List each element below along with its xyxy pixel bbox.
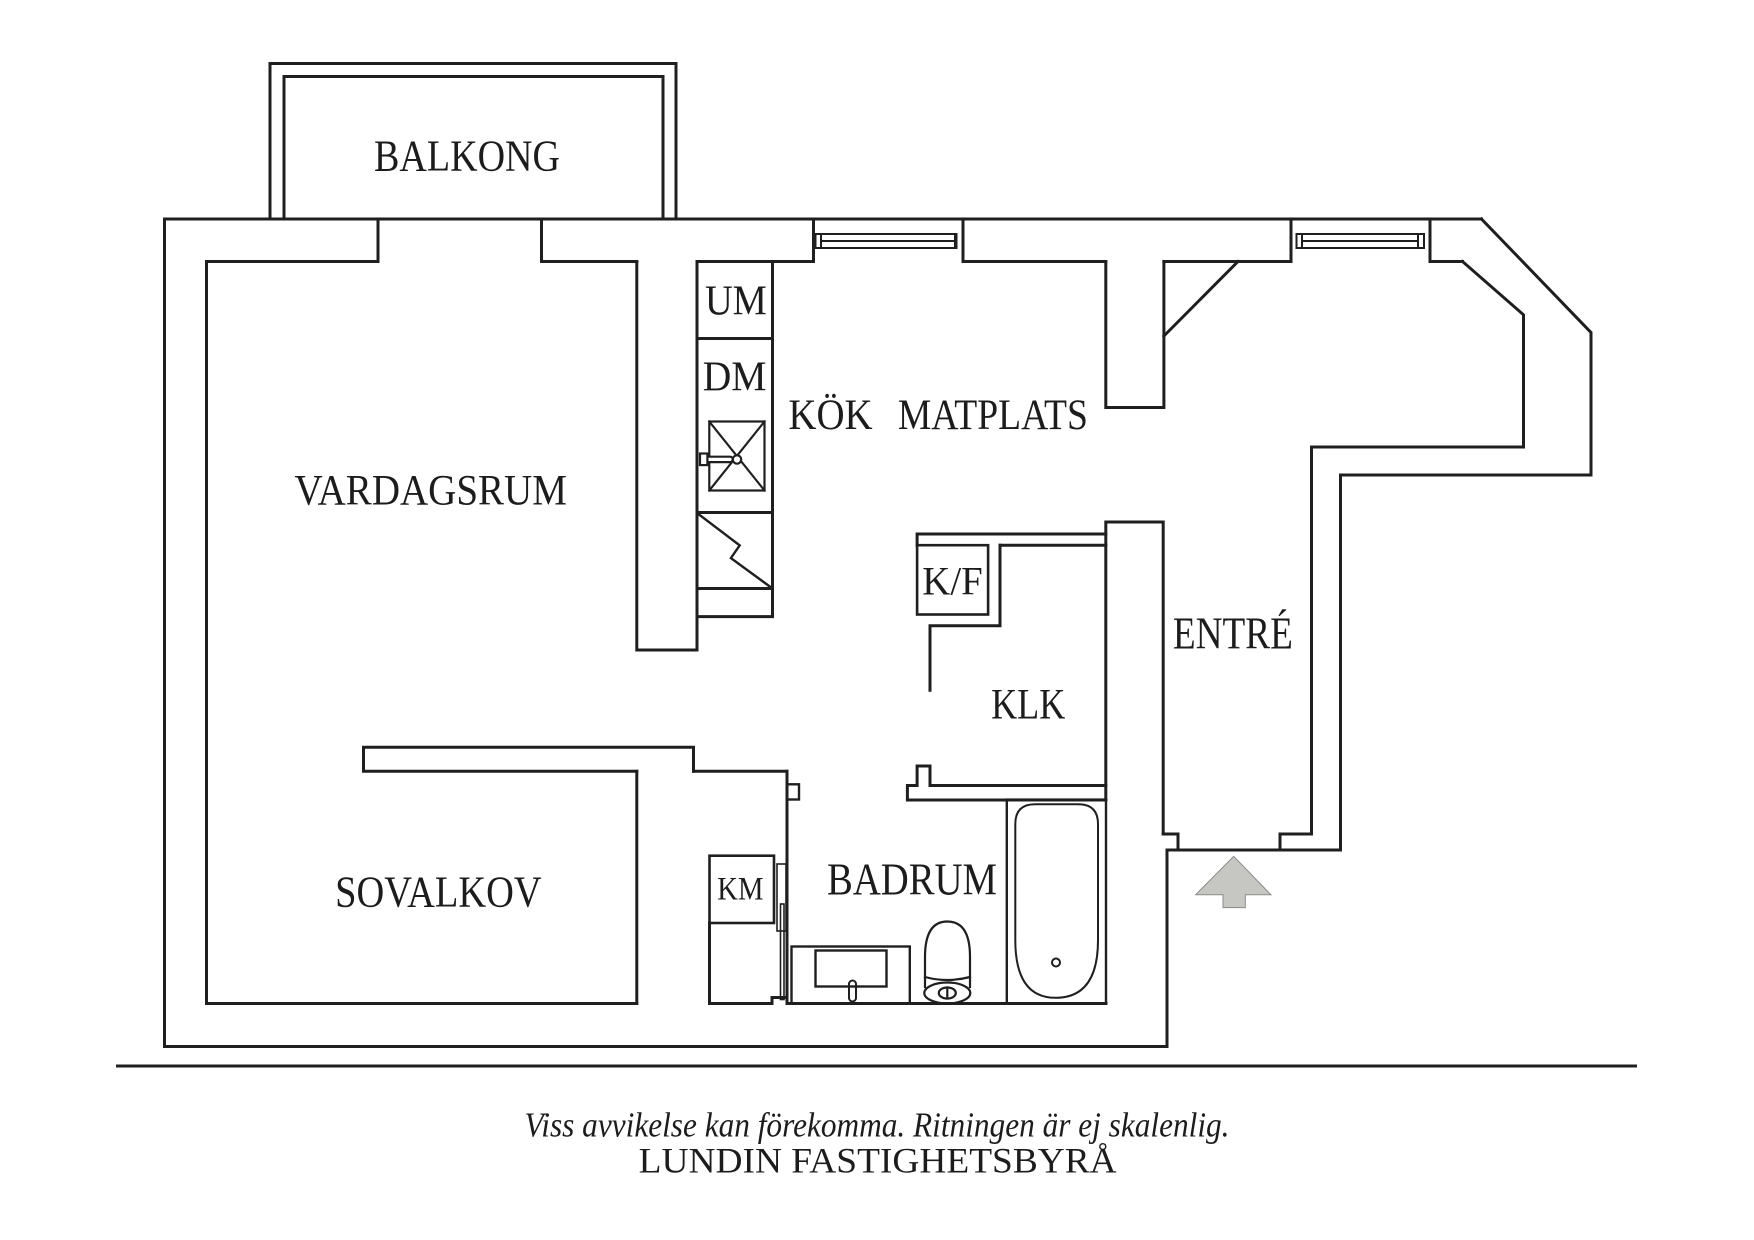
svg-text:BALKONG: BALKONG: [374, 132, 560, 181]
svg-text:ENTRÉ: ENTRÉ: [1173, 609, 1293, 659]
svg-text:LUNDIN FASTIGHETSBYRÅ: LUNDIN FASTIGHETSBYRÅ: [639, 1140, 1117, 1180]
svg-text:UM: UM: [705, 278, 767, 324]
svg-text:VARDAGSRUM: VARDAGSRUM: [295, 468, 567, 515]
svg-text:KÖK: KÖK: [788, 392, 872, 439]
svg-text:SOVALKOV: SOVALKOV: [335, 867, 542, 916]
svg-text:BADRUM: BADRUM: [827, 854, 997, 904]
svg-text:K/F: K/F: [922, 559, 982, 604]
svg-text:DM: DM: [703, 355, 767, 401]
svg-text:KM: KM: [717, 872, 763, 908]
svg-text:KLK: KLK: [991, 682, 1065, 729]
svg-text:MATPLATS: MATPLATS: [898, 392, 1088, 439]
svg-text:Viss avvikelse kan förekomma.: Viss avvikelse kan förekomma. Ritningen …: [525, 1106, 1230, 1145]
